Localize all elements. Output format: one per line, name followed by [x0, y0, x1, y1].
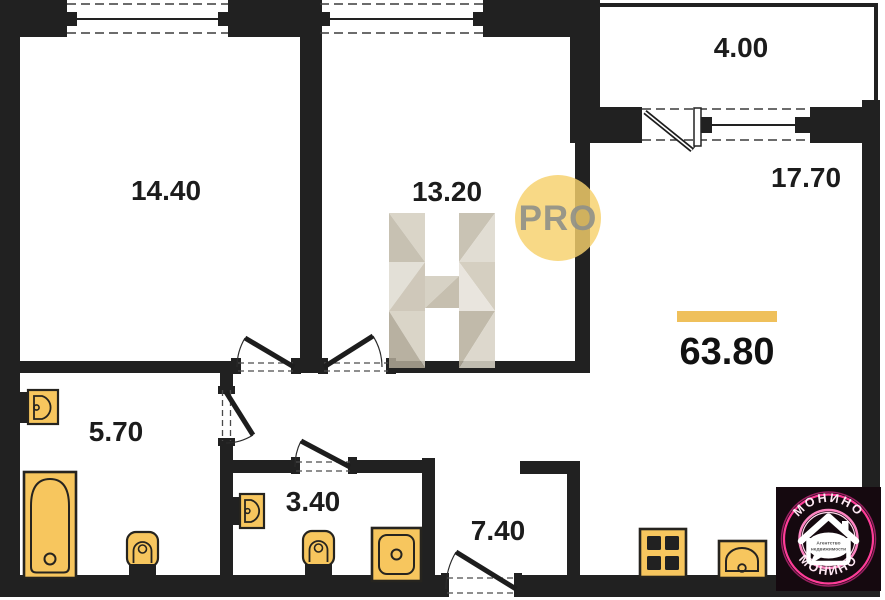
total-area-label: 63.80 — [679, 331, 774, 373]
door-entrance-leaf — [456, 552, 516, 589]
floor-plan-canvas: PRO 14.40 13.20 4.00 17.70 5.70 3.40 7.4… — [0, 0, 885, 600]
bathtub-icon — [24, 472, 76, 578]
area-label-room2: 13.20 — [412, 176, 482, 207]
h-logo-watermark — [389, 213, 495, 368]
shower-icon — [372, 528, 421, 581]
monino-logo: МОНИНО МОНИНО Агентство недвижимости — [776, 487, 881, 591]
area-label-room1: 14.40 — [131, 175, 201, 206]
total-area-bar — [677, 311, 777, 322]
wall-sink-icon — [20, 390, 58, 424]
stove-icon — [638, 529, 688, 585]
kitchen-sink-icon — [719, 541, 766, 586]
door-balcony-leaf-core — [645, 112, 692, 150]
area-label-bath2: 3.40 — [286, 486, 341, 517]
area-label-loggia: 4.00 — [714, 32, 769, 63]
toilet-icon-bath2 — [303, 531, 334, 580]
floor-plan: PRO 14.40 13.20 4.00 17.70 5.70 3.40 7.4… — [0, 0, 885, 600]
toilet-icon-bath1 — [127, 532, 158, 580]
area-label-room3: 17.70 — [771, 162, 841, 193]
logo-tagline-line2: недвижимости — [811, 548, 846, 553]
pro-watermark: PRO — [515, 175, 601, 261]
logo-tagline-line1: Агентство — [816, 541, 840, 547]
area-label-bath1: 5.70 — [89, 416, 144, 447]
door-balcony-panel — [694, 108, 701, 146]
door-opening-dashes — [223, 363, 517, 593]
area-label-hall: 7.40 — [471, 515, 526, 546]
pro-label: PRO — [519, 199, 598, 238]
door-bath2-leaf — [301, 441, 350, 467]
wall-sink-icon-bath2 — [233, 494, 264, 528]
